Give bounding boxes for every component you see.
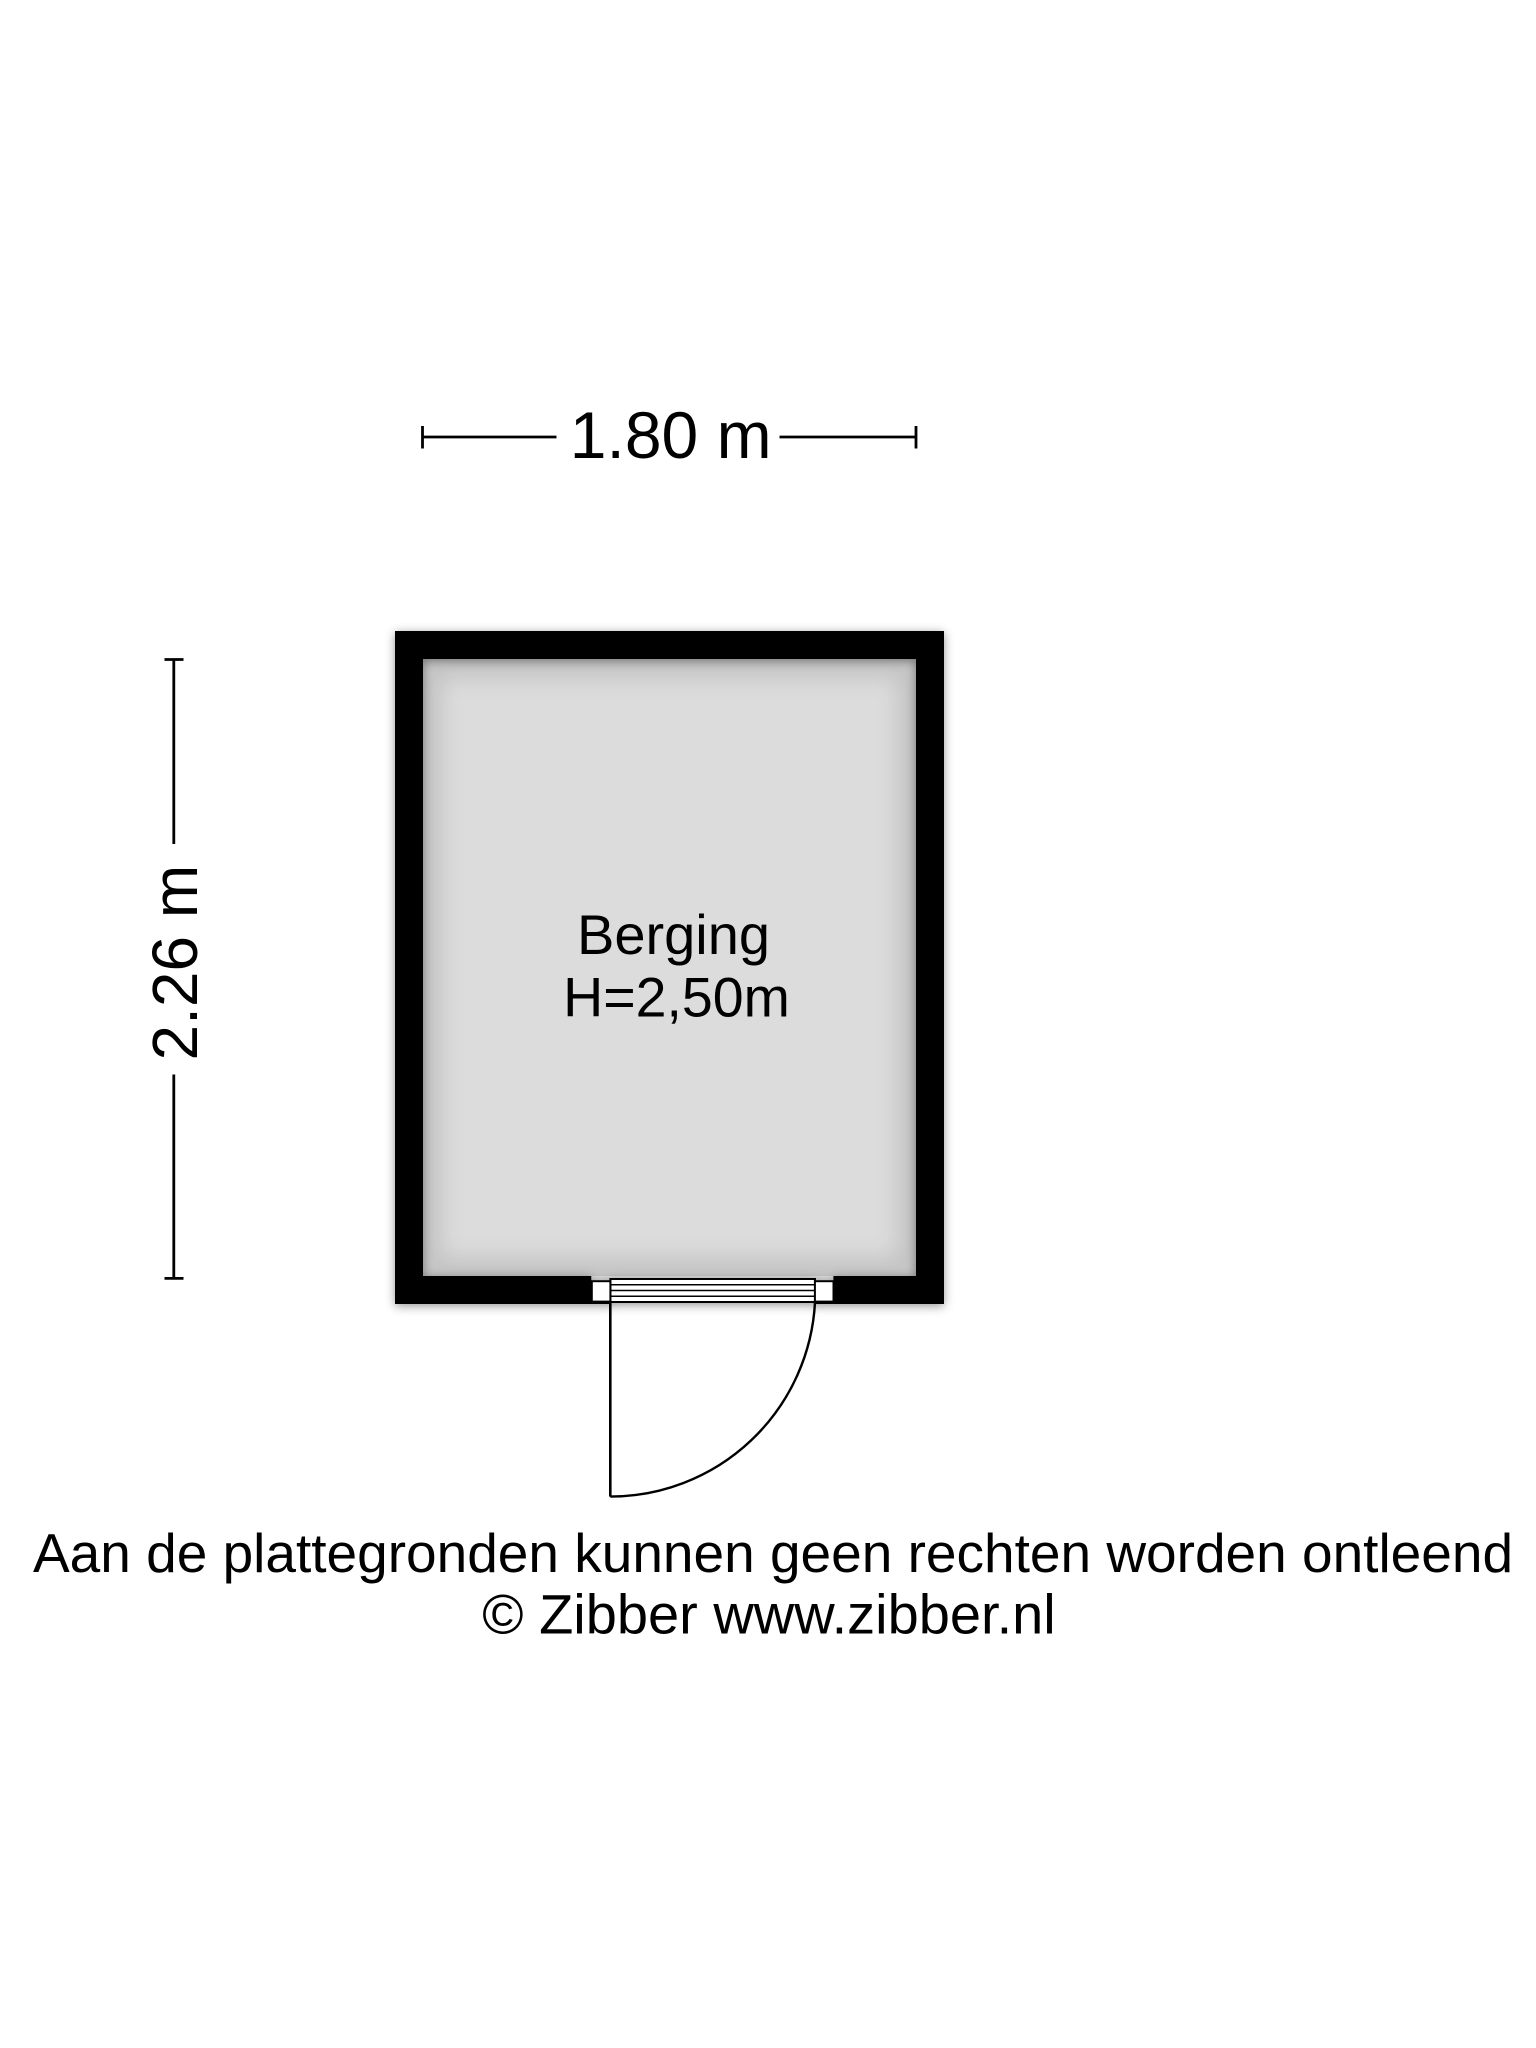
svg-text:H=2,50m: H=2,50m xyxy=(563,967,790,1029)
svg-text:Berging: Berging xyxy=(577,903,770,966)
svg-text:1.80 m: 1.80 m xyxy=(570,398,772,472)
svg-text:Aan de plattegronden kunnen ge: Aan de plattegronden kunnen geen rechten… xyxy=(33,1522,1513,1584)
svg-text:© Zibber www.zibber.nl: © Zibber www.zibber.nl xyxy=(482,1583,1055,1646)
svg-text:2.26 m: 2.26 m xyxy=(139,865,211,1061)
